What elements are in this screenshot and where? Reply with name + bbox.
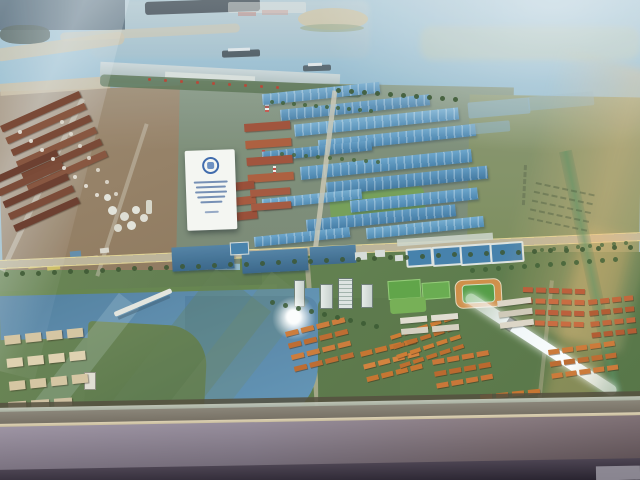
harbor-crane [260,85,263,88]
red-shed-roof [245,138,291,149]
reflected-glyph [551,195,557,198]
house-roof [447,355,460,362]
field-tree [496,266,501,271]
reflected-glyph [558,205,564,208]
house-roof [434,370,447,377]
field-tree [612,242,616,246]
park-tree [348,318,353,323]
chimney-dot [87,156,91,160]
park-tree [361,321,366,326]
factory-tree [364,159,368,163]
apartment-roof [500,319,534,329]
house-roof [337,341,351,349]
tan-building [27,355,44,366]
park-tree [335,315,340,320]
park-tree [322,312,327,317]
card-text-line [200,201,222,204]
field-tree [600,243,604,247]
house-roof [432,358,445,365]
reflected-glyph [567,207,573,210]
reflected-glyph [549,203,555,206]
house-roof [319,333,333,341]
road-tree [628,245,633,250]
reflected-glyph [555,223,561,226]
tan-building [51,376,68,387]
reflected-glyph [539,210,545,213]
chimney-dot [96,168,100,172]
house-roof [574,322,584,327]
photo-architectural-scale-model [0,0,640,480]
reflected-glyph [522,200,525,205]
house-roof [593,366,605,372]
chimney-dot [18,130,22,134]
field-tree [624,241,628,245]
house-roof [381,371,394,379]
harbor-crane [196,81,199,84]
house-roof [363,362,376,370]
house-roof [603,331,612,337]
field-tree [470,268,475,273]
apartment-roof [498,308,532,318]
chimney-dot [73,175,77,179]
field-tree [613,257,618,262]
reflected-glyph [574,218,580,221]
apartment-roof [432,324,459,332]
road-tree [324,258,329,263]
house-roof [576,345,588,351]
factory-tree [316,155,320,159]
reflected-glyph [556,214,562,217]
house-roof [549,288,559,293]
field-tree [561,261,566,266]
house-roof [603,341,615,347]
reflected-glyph [537,219,543,222]
house-roof [423,343,435,350]
card-text-line [195,190,227,193]
factory-tree [376,160,380,164]
road-tree [244,262,249,267]
reflected-glyph [546,221,552,224]
red-shed-roof [244,121,290,132]
house-roof [334,329,348,337]
chimney-dot [40,148,44,152]
red-shed-roof [246,155,292,166]
park-tree [270,300,275,305]
apartment-roof [431,313,458,321]
house-roof [478,362,491,369]
house-roof [535,320,545,325]
house-roof [439,348,451,355]
reflected-glyph [560,196,566,199]
road-tree [404,255,409,260]
house-roof [399,361,411,368]
reflected-glyph [565,216,571,219]
house-roof [591,355,603,361]
reflected-glyph [580,191,586,194]
park-tree [309,309,314,314]
factory-tree [369,109,373,113]
tan-building [46,330,63,341]
tan-building [9,380,26,391]
field-tree [588,244,592,248]
apartment-roof [400,316,427,324]
factory-tree [325,105,329,109]
field-tree [483,267,488,272]
house-roof [564,358,576,364]
road-tree [580,247,585,252]
house-roof [466,376,479,383]
coast-tree [388,92,393,97]
field-tree [574,260,579,265]
reflected-glyph [572,227,578,230]
factory-tree [328,156,332,160]
tan-building [6,357,23,368]
house-roof [436,382,449,389]
house-roof [523,287,533,292]
house-roof [548,321,558,326]
reflected-glyph [569,198,575,201]
house-roof [561,299,571,304]
house-roof [577,356,589,362]
house-roof [366,374,379,382]
house-roof [294,364,308,372]
chimney-dot [69,132,73,136]
factory-tree [304,154,308,158]
info-card [185,149,238,231]
house-roof [607,364,619,370]
house-roof [612,297,621,303]
chimney-dot [95,193,99,197]
house-roof [590,321,599,327]
house-roof [562,347,574,353]
coast-tree [414,94,419,99]
house-roof [396,352,408,359]
harbor-crane [148,78,151,81]
house-roof [451,379,464,386]
factory-tree [280,152,284,156]
apartment-roof [401,327,428,335]
reflected-glyph [583,220,589,223]
house-roof [588,299,597,305]
road-tree [84,269,89,274]
house-roof [536,287,546,292]
reflected-glyph [571,189,577,192]
field-tree [509,265,514,270]
chimney-dot [60,120,64,124]
house-roof [602,320,611,326]
house-roof [615,329,624,335]
reflected-glyph [523,179,526,184]
road-tree [260,261,265,266]
card-text-line [196,185,226,188]
house-roof [325,356,339,364]
chimney-dot [51,157,55,161]
house-roof [464,365,477,372]
house-roof [625,306,634,312]
coast-tree [362,90,367,95]
red-shed-rows [250,187,292,225]
reflected-glyph [543,193,549,196]
field-tree [576,245,580,249]
house-roof [288,340,302,348]
house-roof [309,360,323,368]
factory-tree [303,103,307,107]
apartment-rows [497,297,535,340]
chimney-dot [29,139,33,143]
reflected-glyph [587,202,593,205]
road-tree [532,249,537,254]
factory-tree [352,158,356,162]
chimney-dot [84,184,88,188]
company-logo-icon [201,157,219,175]
reflected-glyph [581,228,587,231]
house-roof [624,295,633,301]
park-tree [296,306,301,311]
reflected-glyph [562,188,568,191]
road-tree [420,254,425,259]
reflected-glyph [524,165,527,170]
coast-tree [336,88,341,93]
red-shed-roof [248,172,294,183]
reflected-glyph [530,208,536,211]
house-roof [551,372,563,378]
house-roof [562,288,572,293]
road-tree [164,265,169,270]
harbor-crane [228,83,231,86]
chimney-dot [114,192,118,196]
field-tree [535,263,540,268]
reflected-glyph [553,186,559,189]
road-tree [308,259,313,264]
house-roof [548,310,558,315]
tan-building [67,328,84,339]
factory-tree [270,100,274,104]
house-roof [600,298,609,304]
house-roof [476,350,489,357]
reflected-glyph [563,225,569,228]
reflected-glyph [534,191,540,194]
chimney-dot [105,180,109,184]
house-roof [378,358,391,366]
house-roof [535,298,545,303]
card-text-line [194,180,228,183]
house-roof [589,310,598,316]
frame-corner-highlight [596,466,640,480]
factory-tree [336,106,340,110]
road-tree [100,268,105,273]
house-roof [413,357,425,364]
road-tree [36,271,41,276]
coast-tree [440,96,445,101]
house-roof [605,353,617,359]
house-roof [574,311,584,316]
factory-tree [340,157,344,161]
factory-tree [292,102,296,106]
park-tree [283,303,288,308]
house-roof [449,367,462,374]
red-shed-roof [251,201,291,211]
reflected-glyph [522,193,525,198]
reflected-glyph [585,211,591,214]
harbor-crane [180,80,183,83]
reflected-glyph [532,200,538,203]
factory-tree [314,104,318,108]
field-tree [587,259,592,264]
road-tree [148,266,153,271]
house-roof [575,289,585,294]
house-roof [480,374,493,381]
reflected-glyph [548,212,554,215]
reflected-glyph [541,201,547,204]
factory-tree [358,108,362,112]
reflected-glyph [536,182,542,185]
road-tree [4,272,9,277]
house-roof [550,360,562,366]
chimney-dot [78,144,82,148]
house-roof [548,299,558,304]
factory-tree [292,153,296,157]
reflected-glyph [544,184,550,187]
road-tree [196,264,201,269]
road-tree [212,263,217,268]
house-roof [591,332,600,338]
field-tree [564,246,568,250]
road-tree [468,252,473,257]
tan-building [30,378,47,389]
card-text-line [197,196,225,199]
reflected-glyph [523,186,526,191]
tan-building [48,353,65,364]
coast-tree [401,93,406,98]
house-roof [579,368,591,374]
factory-tree [347,107,351,111]
house-roof [613,307,622,313]
field-tree [522,264,527,269]
field-tree [548,262,553,267]
house-roof [601,309,610,315]
house-roof [548,348,560,354]
tan-building [4,334,21,345]
card-footer-line [205,211,219,213]
reflected-glyph [528,217,534,220]
house-roof [322,344,336,352]
house-roof [565,370,577,376]
road-tree [356,257,361,262]
field-tree [600,258,605,263]
card-text-lines [186,180,237,214]
road-tree [52,270,57,275]
park-tree [374,324,379,329]
house-roof [627,328,636,334]
factory-tree [281,101,285,105]
coast-tree [453,97,458,102]
harbor-crane [164,79,167,82]
tan-building [69,351,86,362]
tan-building [71,373,88,384]
house-roof [409,347,421,354]
house-roof [614,318,623,324]
coast-tree [427,95,432,100]
reflected-glyph [588,193,594,196]
harbor-crane [212,82,215,85]
house-roof [561,310,571,315]
harbor-crane [276,86,279,89]
house-roof [535,309,545,314]
house-roof [291,352,305,360]
house-roof [590,343,602,349]
house-roof [561,321,571,326]
harbor-crane [244,84,247,87]
reflected-glyph [578,200,584,203]
road-tree [516,250,521,255]
house-roof [306,348,320,356]
house-roof [626,317,635,323]
house-roof [462,353,475,360]
road-tree [372,256,377,261]
coast-tree [375,91,380,96]
house-roof [574,300,584,305]
red-shed-roof [250,187,290,197]
tan-building [25,332,42,343]
field-tree [552,247,556,251]
coast-tree [349,89,354,94]
field-tree [540,248,544,252]
house-roof [303,337,317,345]
chimney-dot [62,166,66,170]
house-roof [453,344,465,351]
road-tree [484,251,489,256]
house-roof [340,352,354,360]
reflected-glyph [576,209,582,212]
reflected-glyph [523,172,526,177]
